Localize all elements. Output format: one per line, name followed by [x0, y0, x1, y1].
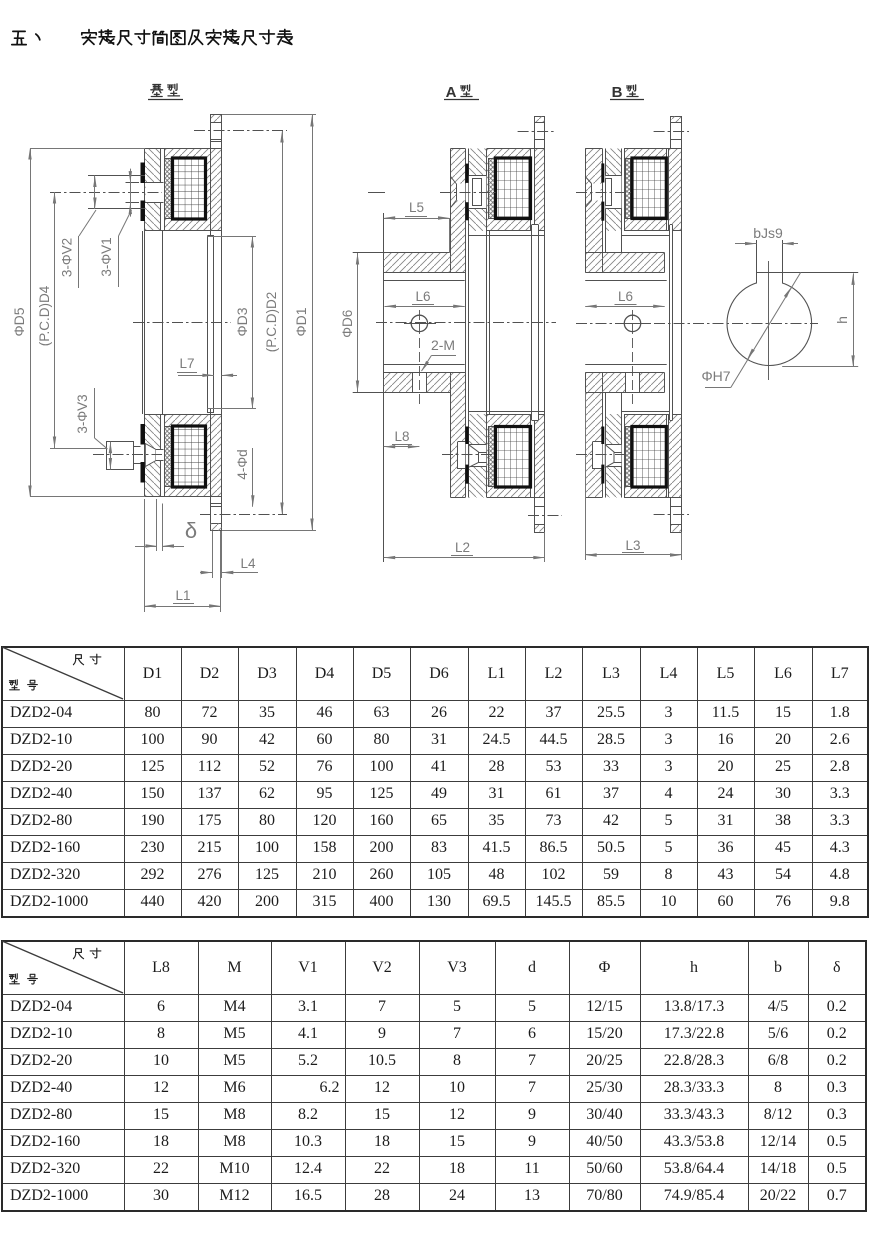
svg-text:L7: L7 — [179, 356, 194, 371]
svg-text:4-Φd: 4-Φd — [235, 449, 250, 479]
svg-text:3-ΦV1: 3-ΦV1 — [99, 237, 114, 276]
svg-text:bJs9: bJs9 — [753, 225, 783, 241]
svg-text:L1: L1 — [175, 588, 190, 603]
svg-text:A: A — [446, 84, 457, 101]
svg-text:L5: L5 — [409, 200, 424, 215]
svg-text:ΦD5: ΦD5 — [11, 307, 27, 336]
svg-text:ΦH7: ΦH7 — [701, 368, 730, 384]
svg-text:h: h — [834, 316, 850, 324]
svg-text:L6: L6 — [415, 289, 430, 304]
svg-text:3-ΦV2: 3-ΦV2 — [60, 238, 75, 277]
svg-text:L3: L3 — [625, 538, 640, 553]
svg-text:ΦD3: ΦD3 — [234, 307, 250, 336]
svg-text:ΦD6: ΦD6 — [340, 310, 355, 338]
svg-text:ΦD1: ΦD1 — [293, 307, 309, 336]
svg-text:2-M: 2-M — [431, 337, 455, 353]
svg-text:L8: L8 — [394, 429, 409, 444]
svg-text:3-ΦV3: 3-ΦV3 — [75, 394, 90, 433]
svg-text:(P.C.D)D2: (P.C.D)D2 — [264, 292, 279, 353]
svg-text:L6: L6 — [618, 289, 633, 304]
svg-text:(P.C.D)D4: (P.C.D)D4 — [37, 285, 52, 346]
svg-text:L2: L2 — [455, 540, 470, 555]
svg-text:δ: δ — [185, 518, 197, 543]
svg-text:L4: L4 — [240, 556, 256, 571]
svg-text:B: B — [612, 84, 623, 101]
